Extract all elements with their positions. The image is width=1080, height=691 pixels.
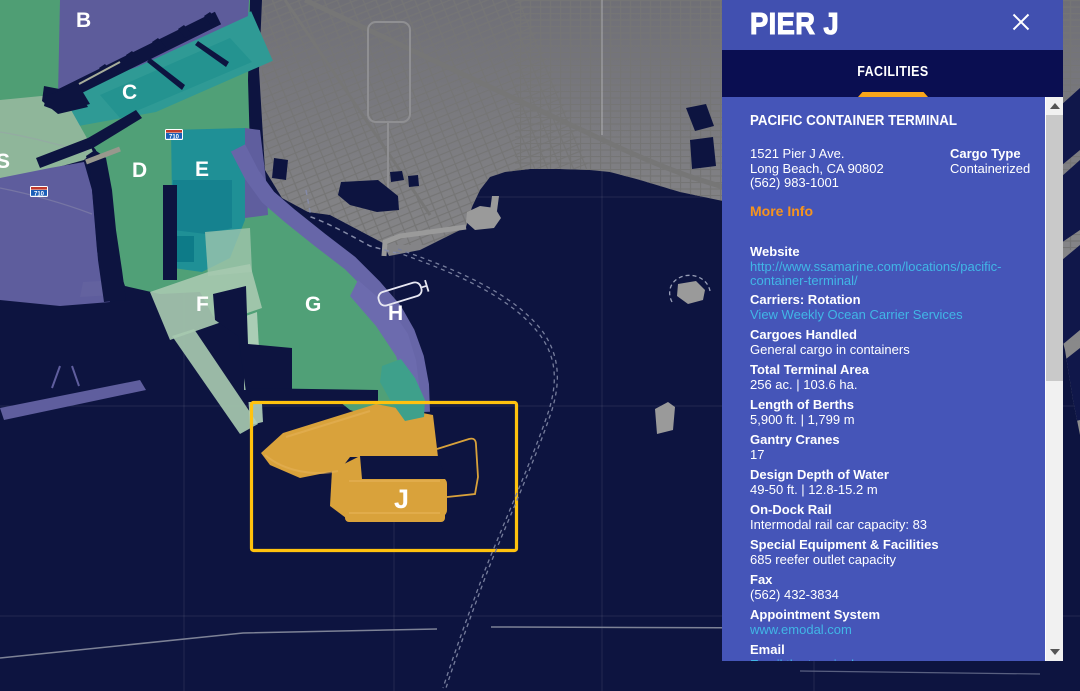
svg-text:J: J (394, 484, 409, 514)
svg-text:F: F (196, 293, 209, 316)
svg-text:G: G (305, 293, 321, 316)
svg-text:E: E (195, 158, 209, 181)
svg-text:D: D (132, 159, 147, 182)
svg-text:S: S (0, 150, 10, 173)
svg-text:H: H (388, 302, 403, 325)
svg-text:C: C (122, 81, 137, 104)
svg-text:B: B (76, 9, 91, 32)
svg-text:710: 710 (169, 135, 180, 141)
svg-text:710: 710 (34, 192, 45, 198)
